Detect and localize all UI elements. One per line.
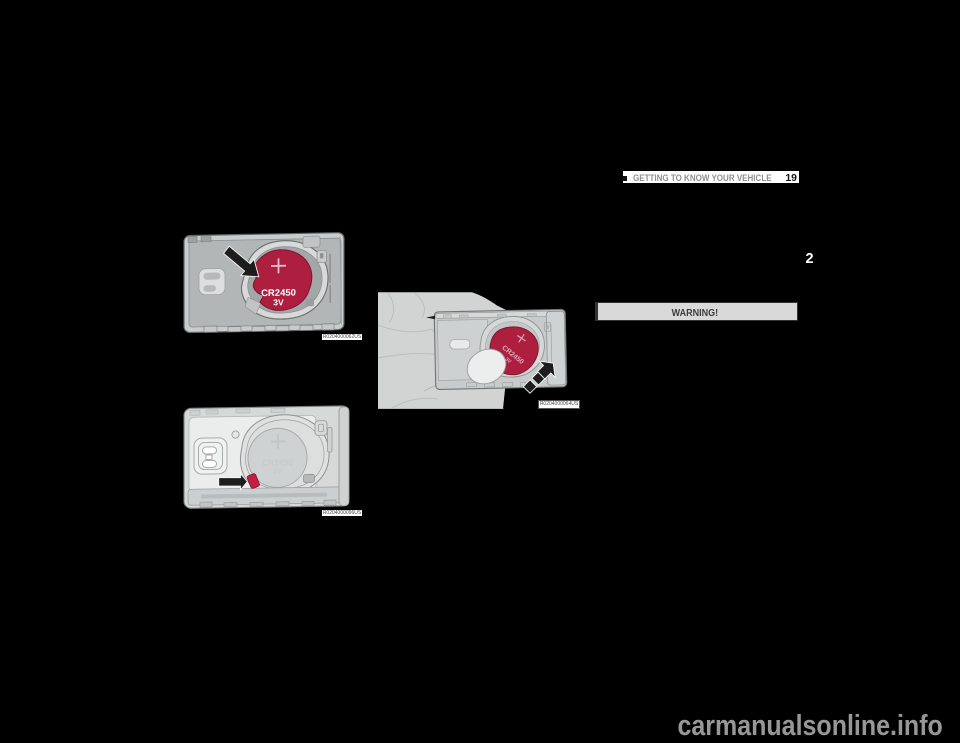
svg-text:3V: 3V xyxy=(273,297,284,307)
svg-text:3V: 3V xyxy=(273,466,282,475)
